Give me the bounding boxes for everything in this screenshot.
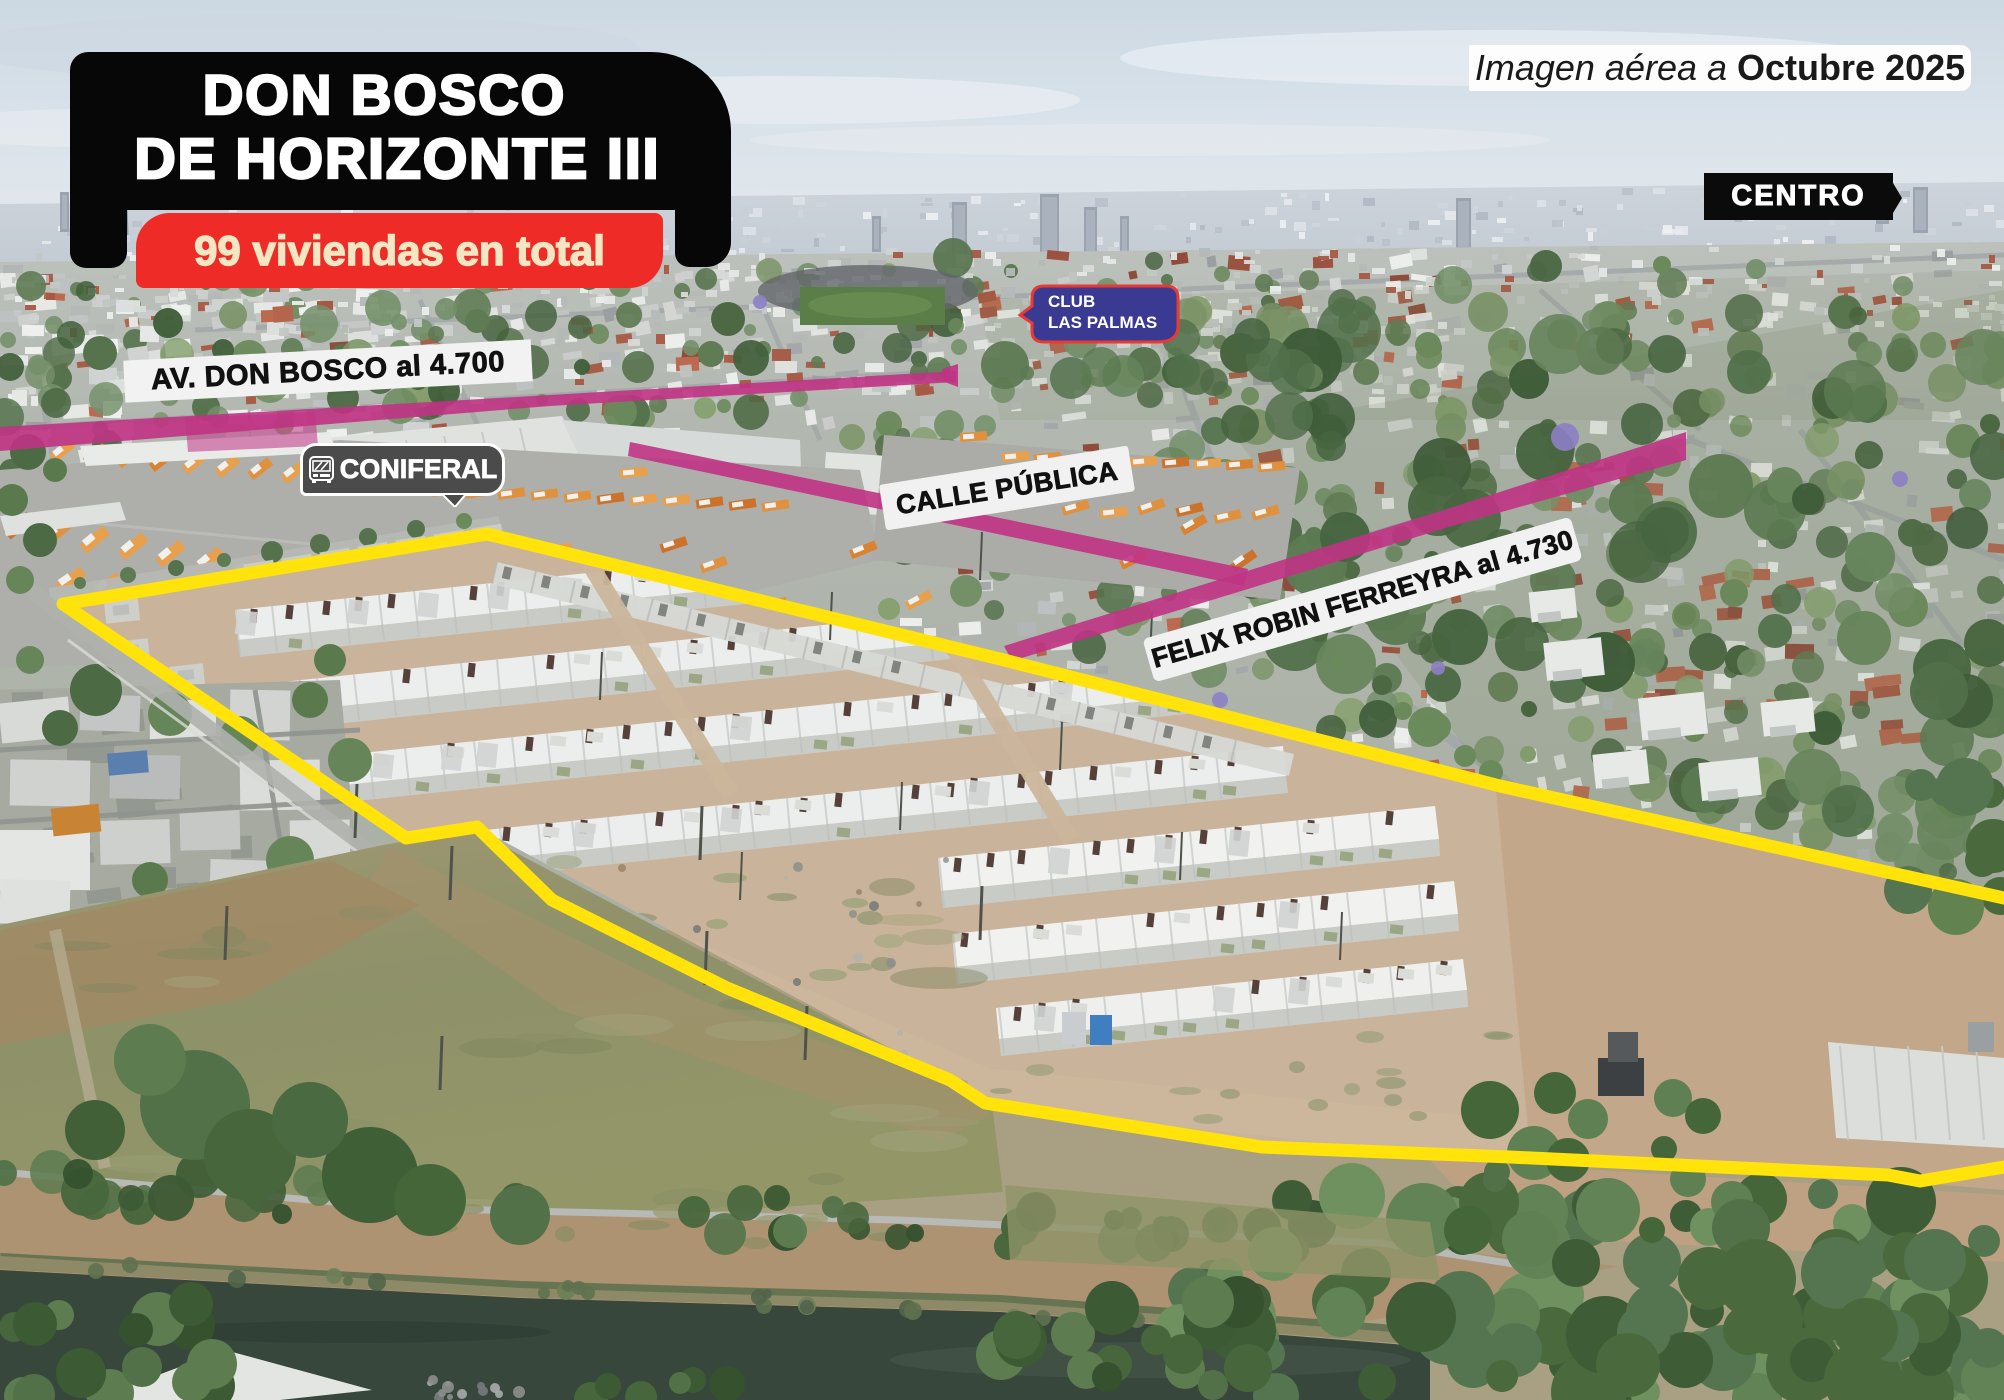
svg-text:LAS PALMAS: LAS PALMAS — [1048, 313, 1157, 332]
svg-text:CLUB: CLUB — [1048, 292, 1095, 311]
